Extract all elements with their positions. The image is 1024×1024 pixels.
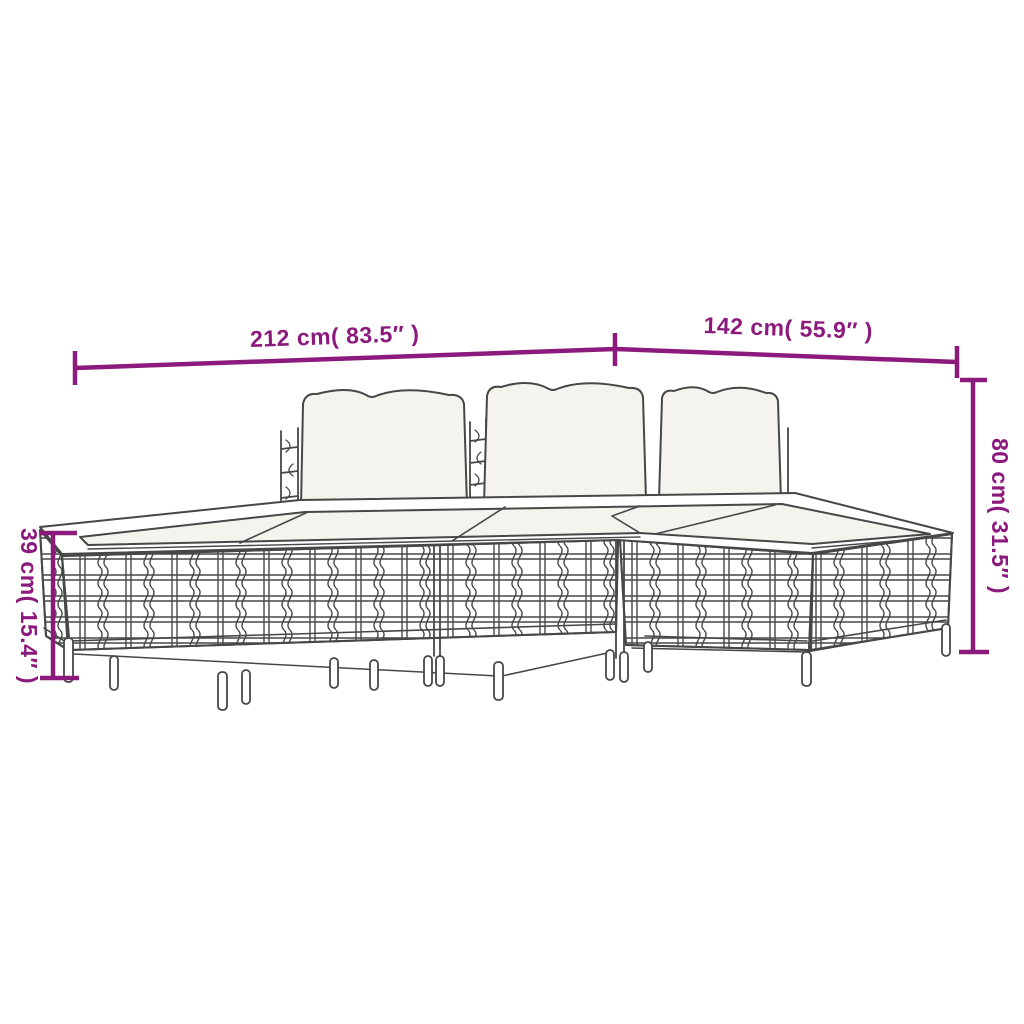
dimension-line-back-height [959, 380, 989, 652]
rattan-panel-front [62, 540, 618, 650]
rattan-panel-right-module-side [811, 534, 952, 650]
back-cushion-middle [484, 383, 646, 504]
dimension-label-total-width: 212 cm( 83.5″ ) [250, 320, 420, 352]
back-cushions [301, 383, 781, 507]
rattan-panel-right-module-front [620, 540, 813, 650]
sofa-set-line-drawing [40, 383, 953, 710]
dimension-label-back-height: 80 cm( 31.5″ ) [987, 438, 1013, 594]
dimension-line-side-depth [615, 346, 957, 378]
dimension-label-seat-height: 39 cm( 15.4″ ) [16, 528, 42, 684]
dimension-line [75, 349, 615, 368]
dimension-diagram: 212 cm( 83.5″ ) 142 cm( 55.9″ ) 80 cm( 3… [0, 0, 1024, 1024]
back-cushion-right [659, 387, 781, 501]
back-cushion-left [301, 390, 467, 507]
dimension-label-side-depth: 142 cm( 55.9″ ) [703, 312, 873, 344]
dimension-line [615, 349, 957, 362]
